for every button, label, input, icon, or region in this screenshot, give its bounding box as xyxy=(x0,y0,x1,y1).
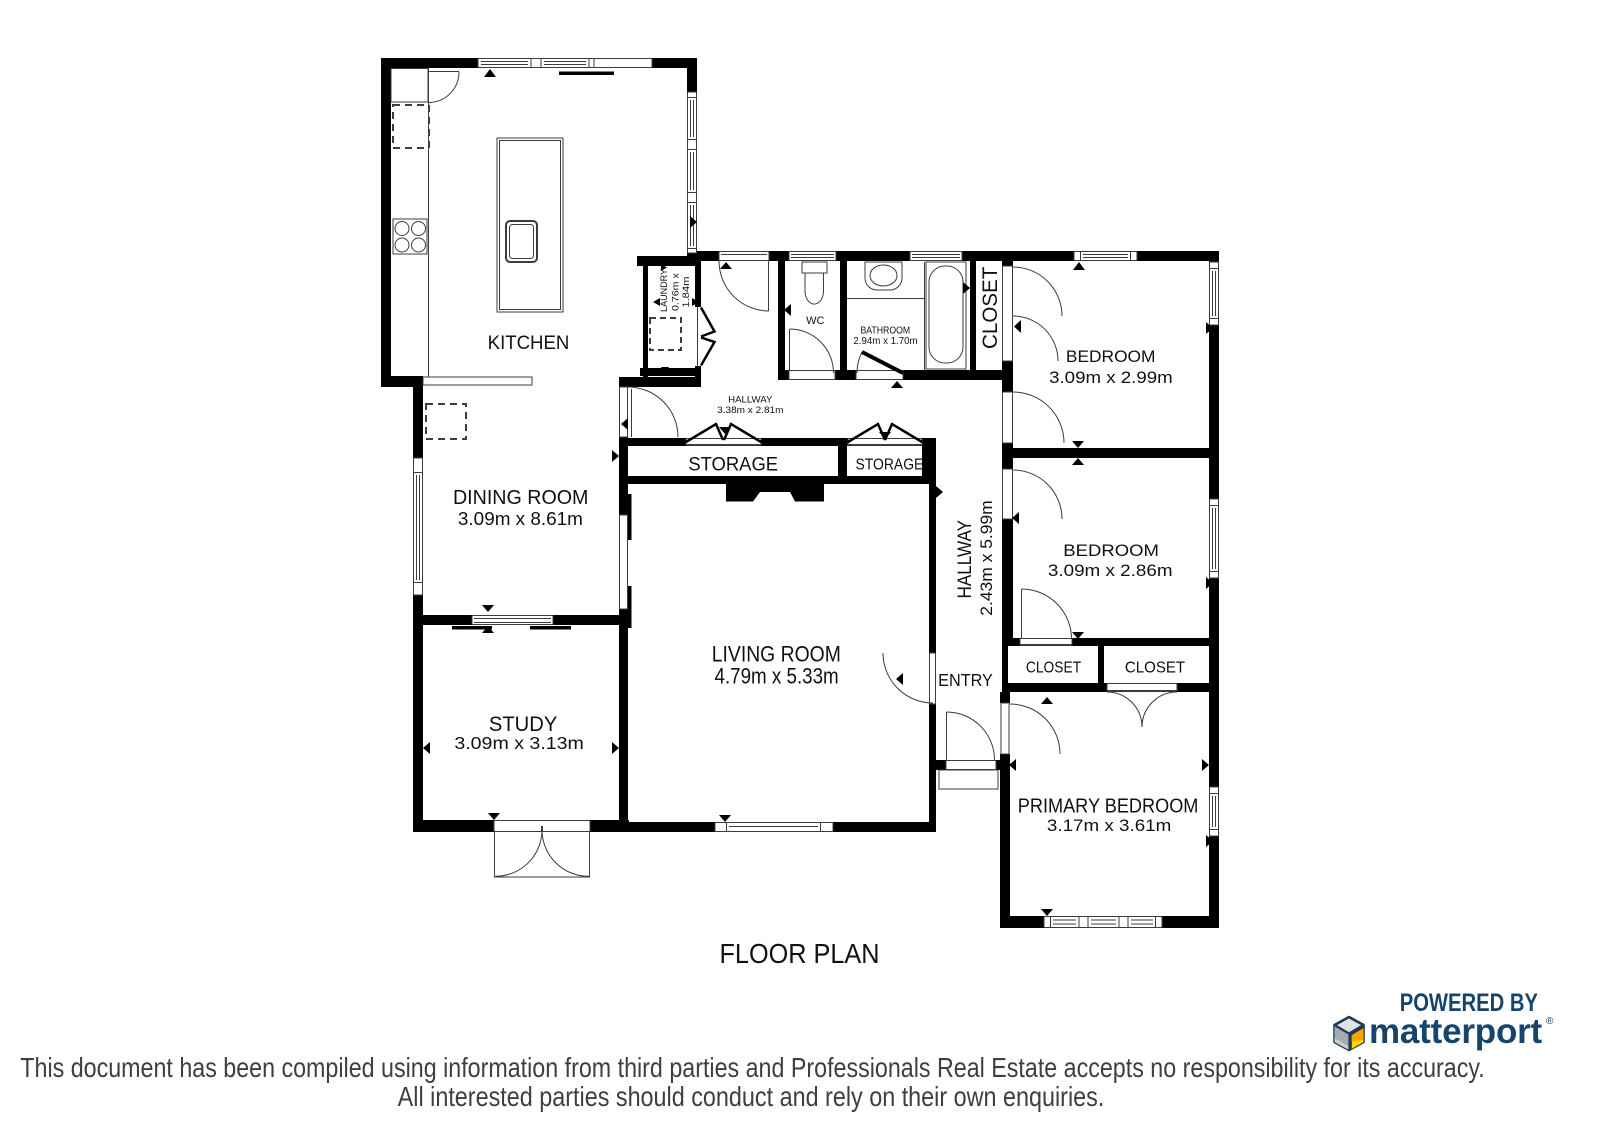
svg-text:1.84m: 1.84m xyxy=(682,277,692,308)
svg-text:4.79m x 5.33m: 4.79m x 5.33m xyxy=(715,664,839,689)
svg-text:This document has been compile: This document has been compiled using in… xyxy=(20,1053,1484,1083)
svg-text:KITCHEN: KITCHEN xyxy=(488,332,570,353)
svg-text:3.17m x 3.61m: 3.17m x 3.61m xyxy=(1047,816,1171,835)
svg-text:BATHROOM: BATHROOM xyxy=(860,325,910,336)
svg-text:DINING ROOM: DINING ROOM xyxy=(453,487,588,509)
svg-text:3.09m x 3.13m: 3.09m x 3.13m xyxy=(454,733,584,753)
svg-text:0.76m x: 0.76m x xyxy=(671,273,681,311)
svg-text:PRIMARY BEDROOM: PRIMARY BEDROOM xyxy=(1018,796,1199,818)
svg-text:BEDROOM: BEDROOM xyxy=(1063,541,1159,560)
svg-text:3.09m x 8.61m: 3.09m x 8.61m xyxy=(458,509,583,530)
svg-text:HALLWAY: HALLWAY xyxy=(728,394,773,405)
svg-text:STORAGE: STORAGE xyxy=(855,457,923,474)
svg-text:2.43m x 5.99m: 2.43m x 5.99m xyxy=(976,500,996,615)
svg-text:LAUNDRY: LAUNDRY xyxy=(659,269,669,312)
svg-text:All interested parties should: All interested parties should conduct an… xyxy=(398,1082,1105,1112)
svg-text:matterport: matterport xyxy=(1369,1012,1543,1051)
svg-text:STORAGE: STORAGE xyxy=(688,453,778,474)
svg-text:WC: WC xyxy=(806,315,824,327)
svg-text:3.38m x 2.81m: 3.38m x 2.81m xyxy=(717,405,783,415)
svg-text:®: ® xyxy=(1546,1016,1554,1027)
svg-text:3.09m x 2.99m: 3.09m x 2.99m xyxy=(1049,368,1173,387)
svg-text:HALLWAY: HALLWAY xyxy=(954,520,975,599)
svg-text:2.94m x 1.70m: 2.94m x 1.70m xyxy=(853,336,917,347)
svg-text:CLOSET: CLOSET xyxy=(1026,658,1081,676)
svg-text:CLOSET: CLOSET xyxy=(1125,659,1186,677)
svg-text:3.09m x 2.86m: 3.09m x 2.86m xyxy=(1048,561,1173,580)
svg-text:ENTRY: ENTRY xyxy=(938,670,993,690)
svg-text:BEDROOM: BEDROOM xyxy=(1066,346,1156,366)
svg-text:CLOSET: CLOSET xyxy=(979,266,1002,349)
svg-text:FLOOR PLAN: FLOOR PLAN xyxy=(719,938,879,969)
